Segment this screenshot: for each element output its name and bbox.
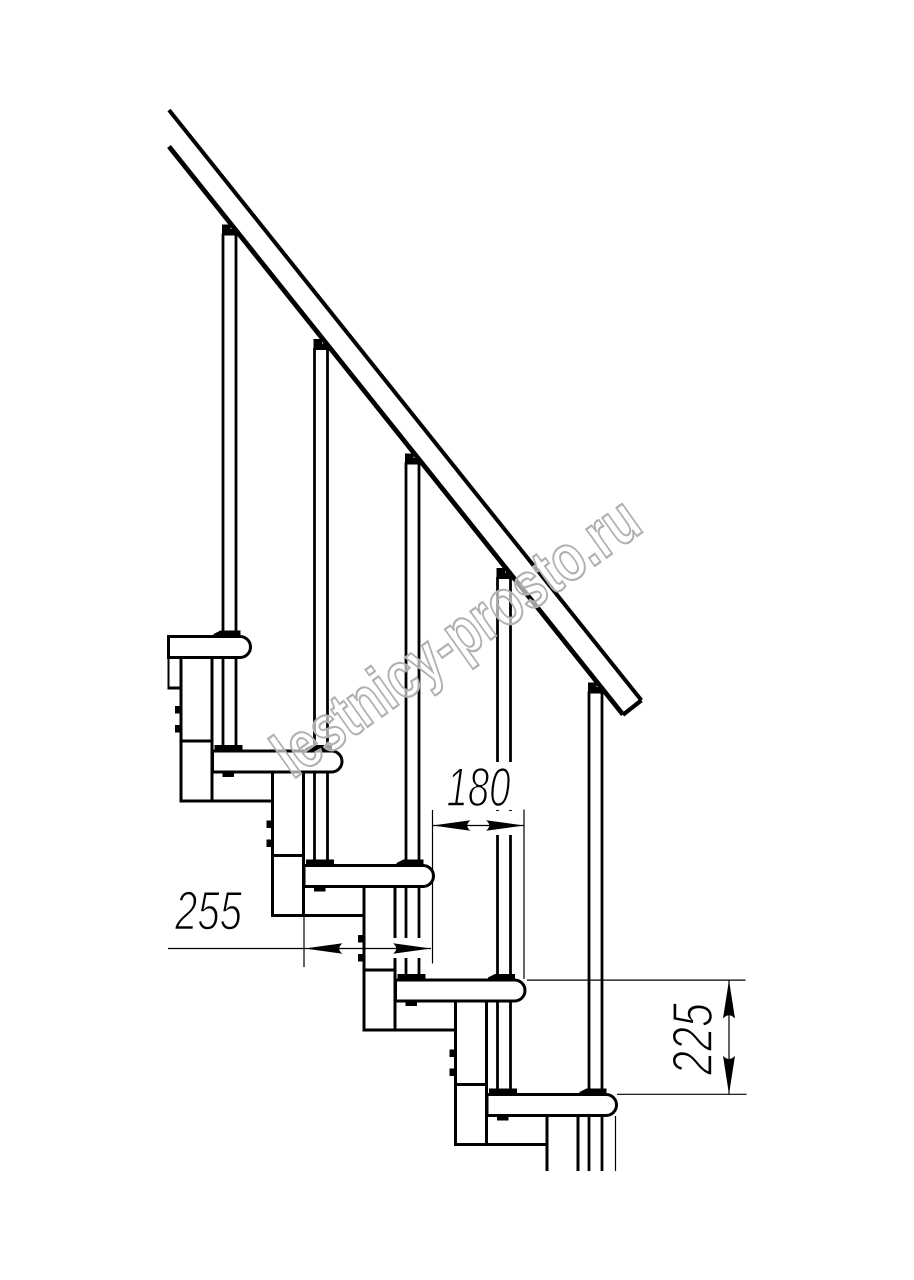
svg-text:225: 225 [661, 1003, 725, 1076]
svg-text:180: 180 [446, 756, 510, 818]
svg-text:255: 255 [174, 879, 242, 941]
